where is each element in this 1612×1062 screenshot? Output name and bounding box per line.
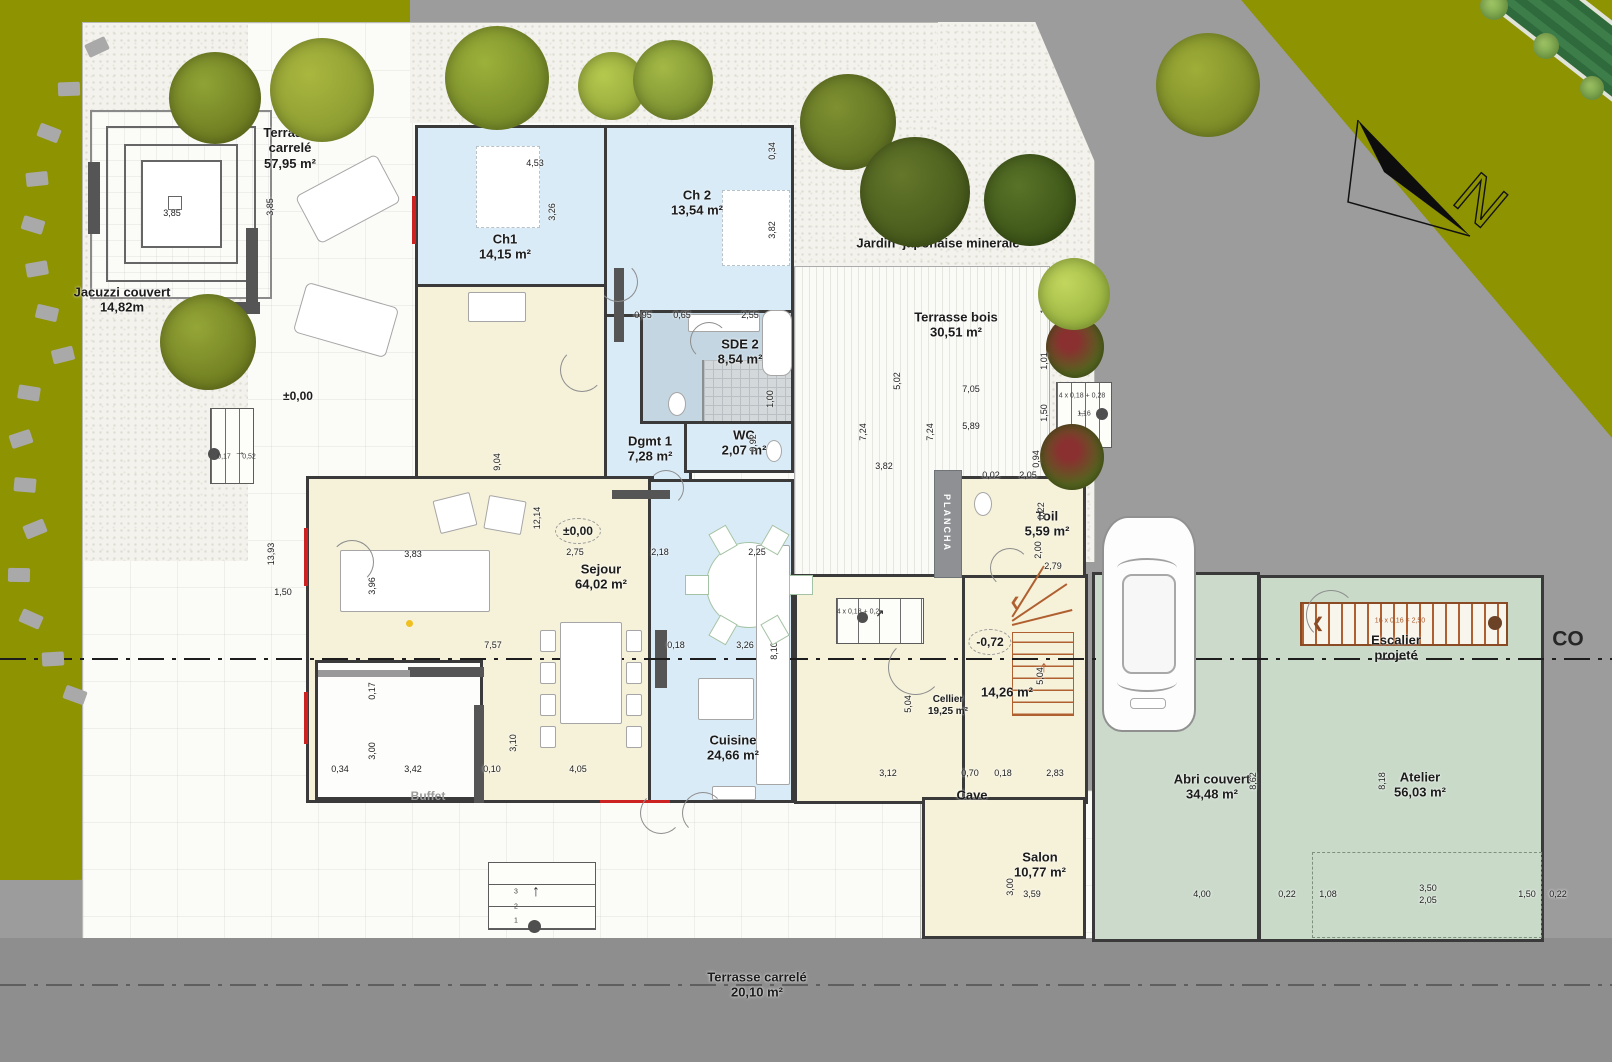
stepping-stone [13, 477, 36, 493]
label-line: 56,03 m² [1394, 785, 1446, 800]
tree [860, 137, 970, 247]
chair [685, 575, 709, 595]
dimension: 12,14 [532, 507, 542, 530]
door-swing-arc [648, 470, 684, 506]
car-rear-window [1117, 672, 1177, 692]
label-atelier: Atelier56,03 m² [1394, 770, 1446, 801]
chair [540, 694, 556, 716]
door-swing-arc [560, 348, 604, 392]
dimension: 0,17 [367, 682, 377, 700]
dimension: 0,22 [1549, 889, 1567, 899]
room-buffet [315, 660, 483, 800]
dimension: 8,10 [769, 642, 779, 660]
dimension: 0,34 [331, 764, 349, 774]
label-line: Escalier [1371, 633, 1421, 648]
label-jacuzzi-couvert: Jacuzzi couvert14,82m [74, 285, 171, 316]
dimension: 0,22 [1036, 502, 1046, 520]
label-line: Dgmt 1 [628, 434, 673, 449]
tree [633, 40, 713, 120]
label-line: WC [722, 428, 767, 443]
escalier-dot [1488, 616, 1502, 630]
note-plancha: PLANCHA [942, 494, 952, 552]
label-line: Sejour [575, 562, 627, 577]
label-room-1426: 14,26 m² [981, 684, 1033, 699]
tree [169, 52, 261, 144]
dimension: 3,59 [1023, 889, 1041, 899]
dimension: 7,24 [925, 423, 935, 441]
door-swing-arc [598, 262, 638, 302]
label-abri-couvert: Abri couvert34,48 m² [1174, 772, 1251, 803]
label-line: 19,25 m² [928, 706, 968, 718]
label-line: Cave [956, 787, 987, 802]
wall-buffet-top [408, 667, 484, 677]
label-line: Toil [1025, 509, 1070, 524]
dimension: 3,12 [879, 768, 897, 778]
dimension: 3,85 [265, 198, 275, 216]
note-tiny-orange: 16 x 0,16 = 2,50 [1375, 618, 1425, 625]
dimension: 1,08 [1319, 889, 1337, 899]
stair-arrow: ❮ [1312, 615, 1324, 632]
stair-arrow: ↑ [1040, 659, 1048, 677]
label-line: 34,48 m² [1174, 787, 1251, 802]
stepping-stone [25, 171, 48, 187]
dimension: 4,05 [569, 764, 587, 774]
door-swing-arc [682, 792, 724, 834]
label-wc: WC2,07 m² [722, 428, 767, 459]
label-cuisine: Cuisine24,66 m² [707, 733, 759, 764]
label-salon: Salon10,77 m² [1014, 850, 1066, 881]
label-cave: Cave [956, 787, 987, 802]
label-line: Terrasse carrelé [707, 970, 807, 985]
dimension: 7,57 [484, 640, 502, 650]
dimension: 9,04 [492, 453, 502, 471]
label-coupe: CO [1552, 628, 1584, 653]
tree [1533, 33, 1559, 59]
stair-south-dot [528, 920, 541, 933]
bathtub [762, 310, 792, 376]
stair-bois-dot [1096, 408, 1108, 420]
chair [626, 630, 642, 652]
armchair-2 [483, 495, 526, 535]
dimension: 3,00 [1005, 878, 1015, 896]
dimension: 3,10 [508, 734, 518, 752]
stair-arrow: → [235, 446, 246, 458]
label-line: Buffet [411, 789, 446, 803]
planter-flowers-2 [1040, 424, 1104, 490]
stair-arrow: ↑ [532, 883, 540, 901]
label-line: projeté [1371, 648, 1421, 663]
dimension: 0,18 [994, 768, 1012, 778]
dimension: 0,18 [667, 640, 685, 650]
north-arrow: N [1338, 110, 1513, 260]
window-mark-3 [412, 196, 416, 244]
label-line: Abri couvert [1174, 772, 1251, 787]
chair [626, 694, 642, 716]
label-line: CO [1552, 628, 1584, 653]
dimension: 0,70 [961, 768, 979, 778]
stepping-stone [8, 568, 30, 582]
label-toil: Toil5,59 m² [1025, 509, 1070, 540]
note-tiny: 3 [514, 889, 518, 896]
label-line: Salon [1014, 850, 1066, 865]
chair [540, 630, 556, 652]
dimension: 8,18 [1377, 772, 1387, 790]
dimension: 3,42 [404, 764, 422, 774]
label-line: 13,54 m² [671, 203, 723, 218]
stepping-stone [58, 82, 80, 97]
dimension: 2,18 [651, 547, 669, 557]
dimension: 3,96 [367, 577, 377, 595]
label-sejour: Sejour64,02 m² [575, 562, 627, 593]
note-tiny: 4 x 0,18 + 0,28 [1059, 393, 1106, 400]
floor-plan: N Terrassecarrelé57,95 m²Jacuzzi couvert… [0, 0, 1612, 1062]
dimension: 8,62 [1248, 772, 1258, 790]
dimension: 3,82 [767, 221, 777, 239]
dimension: 3,26 [736, 640, 754, 650]
dimension: 0,65 [673, 310, 691, 320]
dimension: 5,02 [892, 372, 902, 390]
tree [1156, 33, 1260, 137]
label-line: 64,02 m² [575, 577, 627, 592]
label-ch2: Ch 213,54 m² [671, 188, 723, 219]
toilet-sde2 [668, 392, 686, 416]
dimension: 2,05 [1419, 895, 1437, 905]
stair-arrow: ↗ [876, 609, 884, 620]
label-cellier: Cellier19,25 m² [928, 694, 968, 718]
dimension: 3,26 [547, 203, 557, 221]
wall-buffet-right [474, 705, 484, 803]
label-line: 2,07 m² [722, 443, 767, 458]
stair-arrow: ← [1077, 406, 1088, 418]
wall-buffet-top-light [318, 670, 410, 677]
note-tiny: 1 [514, 918, 518, 925]
label-line: Ch1 [479, 232, 531, 247]
dimension: 4,53 [526, 158, 544, 168]
dimension: 0,22 [1278, 889, 1296, 899]
tree [270, 38, 374, 142]
label-line: 24,66 m² [707, 748, 759, 763]
dining-table [560, 622, 622, 724]
label-line: 7,28 m² [628, 449, 673, 464]
tree [160, 294, 256, 390]
label-line: Atelier [1394, 770, 1446, 785]
stepping-stone [42, 651, 65, 666]
dimension: 13,93 [266, 543, 276, 566]
dimension: 3,85 [163, 208, 181, 218]
tree [445, 26, 549, 130]
dimension: 2,75 [566, 547, 584, 557]
tree [1038, 258, 1110, 330]
car-trunk-detail [1130, 698, 1166, 709]
dimension: 3,00 [367, 742, 377, 760]
kitchen-counter [756, 545, 790, 785]
dimension: 0,95 [634, 310, 652, 320]
dimension: 1,00 [765, 390, 775, 408]
door-swing-arc [888, 640, 943, 695]
label-line: 14,15 m² [479, 247, 531, 262]
chair [540, 662, 556, 684]
stair-south [488, 862, 596, 930]
label-escalier-projete: Escalierprojeté [1371, 633, 1421, 664]
chair [789, 575, 813, 595]
label-line: Jacuzzi couvert [74, 285, 171, 300]
note-tiny: 4 x 0,18 + 0,2 [837, 609, 880, 616]
tree [1580, 76, 1604, 100]
window-mark-2 [304, 692, 308, 744]
dimension: 2,05 [1019, 470, 1037, 480]
kitchen-island [698, 678, 754, 720]
dimension: 2,79 [1044, 561, 1062, 571]
desk [468, 292, 526, 322]
label-line: Ch 2 [671, 188, 723, 203]
dimension: 2,83 [1046, 768, 1064, 778]
note-tiny: 2 [514, 904, 518, 911]
dimension: 3,50 [1419, 883, 1437, 893]
dimension: 0,34 [767, 142, 777, 160]
dimension: 7,05 [962, 384, 980, 394]
label-line: 8,54 m² [718, 352, 763, 367]
dimension: 3,82 [875, 461, 893, 471]
label-line: Cellier [928, 694, 968, 706]
door-swing-arc [640, 792, 682, 834]
dimension: 2,00 [1033, 541, 1043, 559]
chair [540, 726, 556, 748]
dimension: 0,92 [748, 434, 758, 452]
dimension: 1,50 [1039, 404, 1049, 422]
window-mark-1 [304, 528, 308, 586]
label-line: 30,51 m² [914, 325, 998, 340]
door-swing-arc [330, 540, 374, 584]
dimension: 0,02 [982, 470, 1000, 480]
label-line: 14,82m [74, 300, 171, 315]
dimension: 1,50 [274, 587, 292, 597]
dimension: 1,01 [1039, 352, 1049, 370]
toilet-wc [766, 440, 782, 462]
elevation-marker: -0,72 [968, 629, 1011, 655]
tree [984, 154, 1076, 246]
stair-cellier [836, 598, 924, 644]
elevation-marker: ±0,00 [283, 389, 313, 403]
label-line: 14,26 m² [981, 684, 1033, 699]
chair [626, 726, 642, 748]
dimension: 5,89 [962, 421, 980, 431]
kitchen-stove [712, 786, 756, 800]
toilet-toil [974, 492, 992, 516]
car-roof [1122, 574, 1176, 674]
lamp-dot [406, 620, 413, 627]
label-line: 57,95 m² [263, 156, 316, 171]
dimension: 2,55 [741, 310, 759, 320]
label-line: 20,10 m² [707, 985, 807, 1000]
jacuzzi-wall-a [88, 162, 100, 234]
stair-arrow: ❮ [1010, 595, 1020, 609]
label-line: Cuisine [707, 733, 759, 748]
label-buffet: Buffet [411, 789, 446, 803]
label-dgmt1: Dgmt 17,28 m² [628, 434, 673, 465]
note-tiny: 0,17 [217, 454, 231, 461]
label-line: Terrasse bois [914, 310, 998, 325]
label-line: 10,77 m² [1014, 865, 1066, 880]
label-ch1: Ch114,15 m² [479, 232, 531, 263]
elevation-marker: ±0,00 [555, 518, 601, 544]
stair-left [210, 408, 254, 484]
dimension: 5,04 [903, 695, 913, 713]
dimension: 2,25 [748, 547, 766, 557]
dimension: 4,00 [1193, 889, 1211, 899]
chair [626, 662, 642, 684]
north-letter: N [1441, 160, 1513, 242]
door-swing-arc [690, 322, 728, 360]
door-swing-arc [990, 548, 1030, 588]
dimension: 0,10 [483, 764, 501, 774]
label-line: 5,59 m² [1025, 524, 1070, 539]
dimension: 7,24 [858, 423, 868, 441]
label-line: carrelé [263, 140, 316, 155]
label-terrasse-bois: Terrasse bois30,51 m² [914, 310, 998, 341]
dimension: 0,94 [1031, 450, 1041, 468]
dimension: 3,83 [404, 549, 422, 559]
bed-ch2 [722, 190, 790, 266]
dimension: 1,50 [1518, 889, 1536, 899]
label-terrasse-carrele-sud: Terrasse carrelé20,10 m² [707, 970, 807, 1001]
